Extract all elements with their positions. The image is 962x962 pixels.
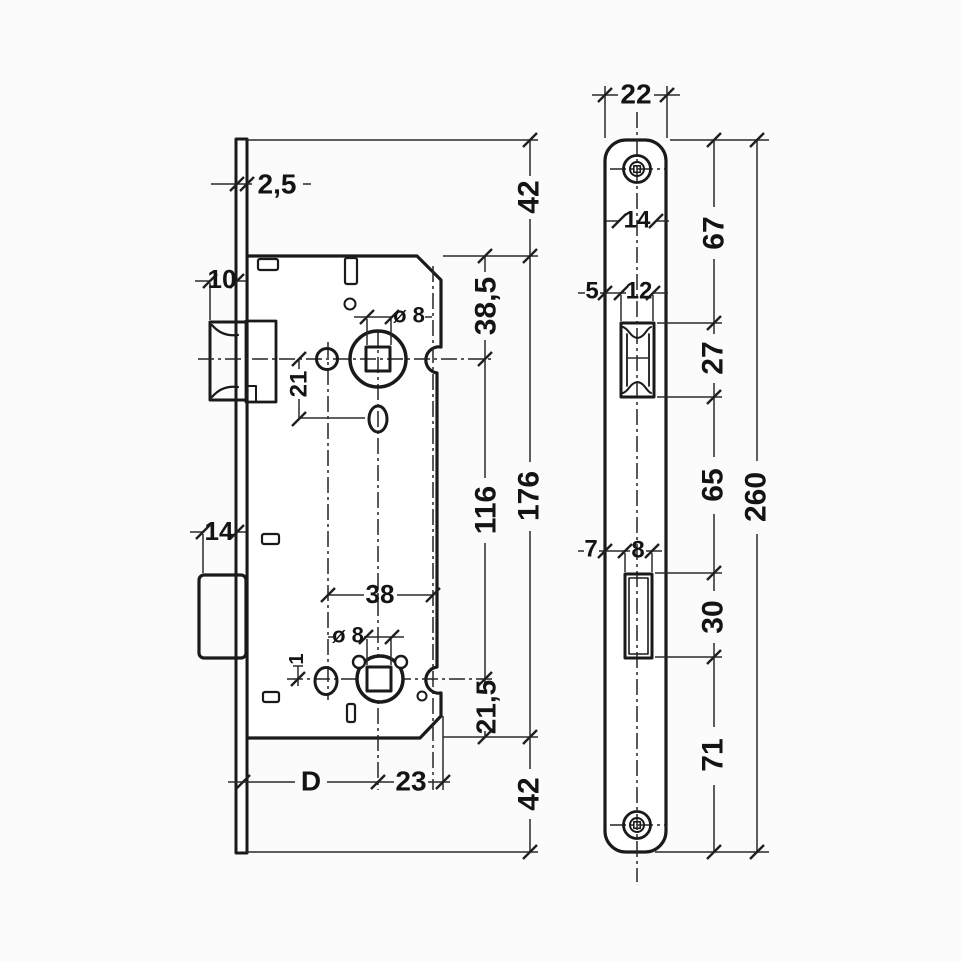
dim-deadbolt-cutout-width: 8	[631, 537, 644, 564]
dim-bottom-margin: 42	[513, 777, 546, 810]
faceplate-front	[605, 140, 666, 852]
dim-deadbolt-to-bottom: 71	[697, 738, 730, 771]
dim-deadbolt-projection: 14	[205, 516, 234, 546]
dim-upper-spindle: ø 8	[393, 303, 425, 328]
dim-lower-spindle: ø 8	[332, 623, 364, 648]
dim-backset: D	[301, 766, 321, 797]
dim-latch-to-deadbolt: 65	[697, 468, 730, 501]
dim-latch-projection: 10	[208, 264, 237, 294]
dim-axis-to-front-edge: 23	[395, 766, 426, 797]
side-view: 2,5 10 42 38,5 116 176 21 ø 8 14 38 ø 8 …	[190, 133, 546, 859]
dim-top-to-latch-cutout: 67	[698, 216, 731, 249]
dim-plate-width: 22	[620, 79, 651, 110]
dim-hole-spacing: 38	[366, 579, 395, 609]
technical-drawing-page: 2,5 10 42 38,5 116 176 21 ø 8 14 38 ø 8 …	[0, 0, 962, 962]
dim-faceplate-thickness: 2,5	[258, 169, 297, 200]
lock-technical-drawing: 2,5 10 42 38,5 116 176 21 ø 8 14 38 ø 8 …	[0, 0, 962, 962]
dim-deadbolt-margin: 7	[584, 536, 597, 563]
lower-follower-notch-right	[395, 656, 407, 668]
latch-bevel-bottom	[212, 387, 238, 397]
lower-follower-notch-left	[353, 656, 365, 668]
dim-follower-to-hole: 21	[286, 371, 313, 398]
latch-bevel-top	[212, 325, 238, 335]
dim-small-offset: 1	[286, 653, 308, 664]
faceplate-side	[236, 139, 247, 853]
dim-axis-to-case-bottom: 21,5	[471, 680, 502, 735]
dim-edge-margin: 5	[585, 278, 598, 305]
dim-top-margin: 42	[513, 180, 546, 213]
dim-follower-spacing: 116	[470, 486, 503, 534]
dim-latch-cutout-height: 27	[697, 341, 730, 374]
dim-latch-cutout-width: 12	[626, 278, 653, 305]
dim-deadbolt-cutout-height: 30	[697, 600, 730, 633]
dim-latch-width: 14	[624, 207, 651, 234]
dim-plate-height: 260	[740, 472, 773, 522]
dim-case-height: 176	[513, 471, 546, 521]
dim-case-top-to-follower: 38,5	[470, 277, 503, 335]
front-view: 22 14 67 5 12 27 65 260 7 8 30 71	[578, 79, 773, 883]
